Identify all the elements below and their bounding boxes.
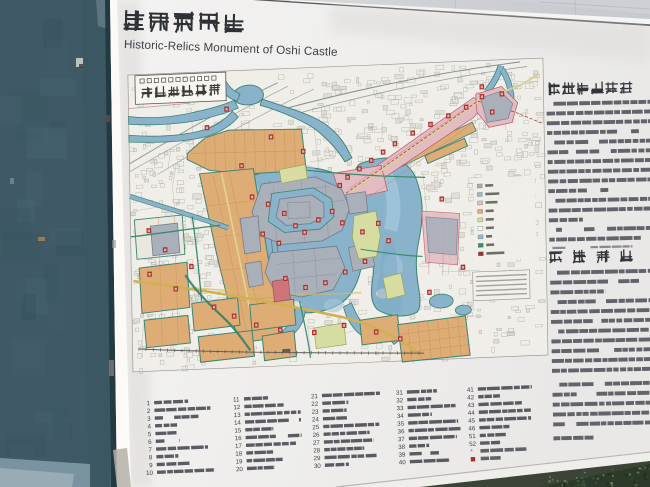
- svg-text:12: 12: [233, 404, 241, 411]
- svg-text:44: 44: [468, 410, 476, 417]
- svg-text:20: 20: [236, 466, 244, 473]
- svg-text:16: 16: [235, 435, 243, 442]
- svg-text:29: 29: [313, 455, 321, 462]
- svg-text:31: 31: [396, 389, 404, 396]
- svg-text:19: 19: [236, 458, 244, 465]
- svg-text:52: 52: [469, 441, 477, 448]
- svg-text:23: 23: [312, 409, 320, 416]
- svg-text:33: 33: [396, 405, 404, 412]
- svg-text:25: 25: [312, 424, 320, 431]
- svg-text:43: 43: [467, 402, 475, 409]
- svg-text:21: 21: [311, 393, 319, 400]
- svg-text:17: 17: [235, 443, 243, 450]
- svg-text:13: 13: [234, 412, 242, 419]
- svg-text:46: 46: [468, 425, 476, 432]
- svg-text:10: 10: [146, 470, 154, 477]
- svg-text:11: 11: [233, 396, 240, 403]
- svg-text:30: 30: [314, 463, 322, 470]
- svg-text:40: 40: [399, 459, 407, 466]
- svg-text:38: 38: [398, 444, 406, 451]
- svg-text:24: 24: [312, 416, 320, 423]
- svg-text:32: 32: [396, 397, 404, 404]
- svg-text:26: 26: [312, 432, 320, 439]
- svg-text:36: 36: [397, 428, 405, 435]
- svg-text:41: 41: [467, 387, 475, 394]
- svg-text:42: 42: [467, 394, 475, 401]
- svg-text:28: 28: [313, 447, 321, 454]
- svg-text:35: 35: [397, 420, 405, 427]
- svg-text:51: 51: [469, 433, 477, 440]
- svg-text:18: 18: [235, 450, 243, 457]
- svg-text:22: 22: [311, 401, 319, 408]
- svg-text:34: 34: [397, 413, 405, 420]
- svg-text:45: 45: [468, 417, 476, 424]
- svg-text:14: 14: [234, 419, 242, 426]
- svg-text:15: 15: [234, 427, 242, 434]
- svg-text:39: 39: [398, 451, 406, 458]
- svg-text:27: 27: [313, 440, 321, 447]
- svg-text:37: 37: [398, 436, 406, 443]
